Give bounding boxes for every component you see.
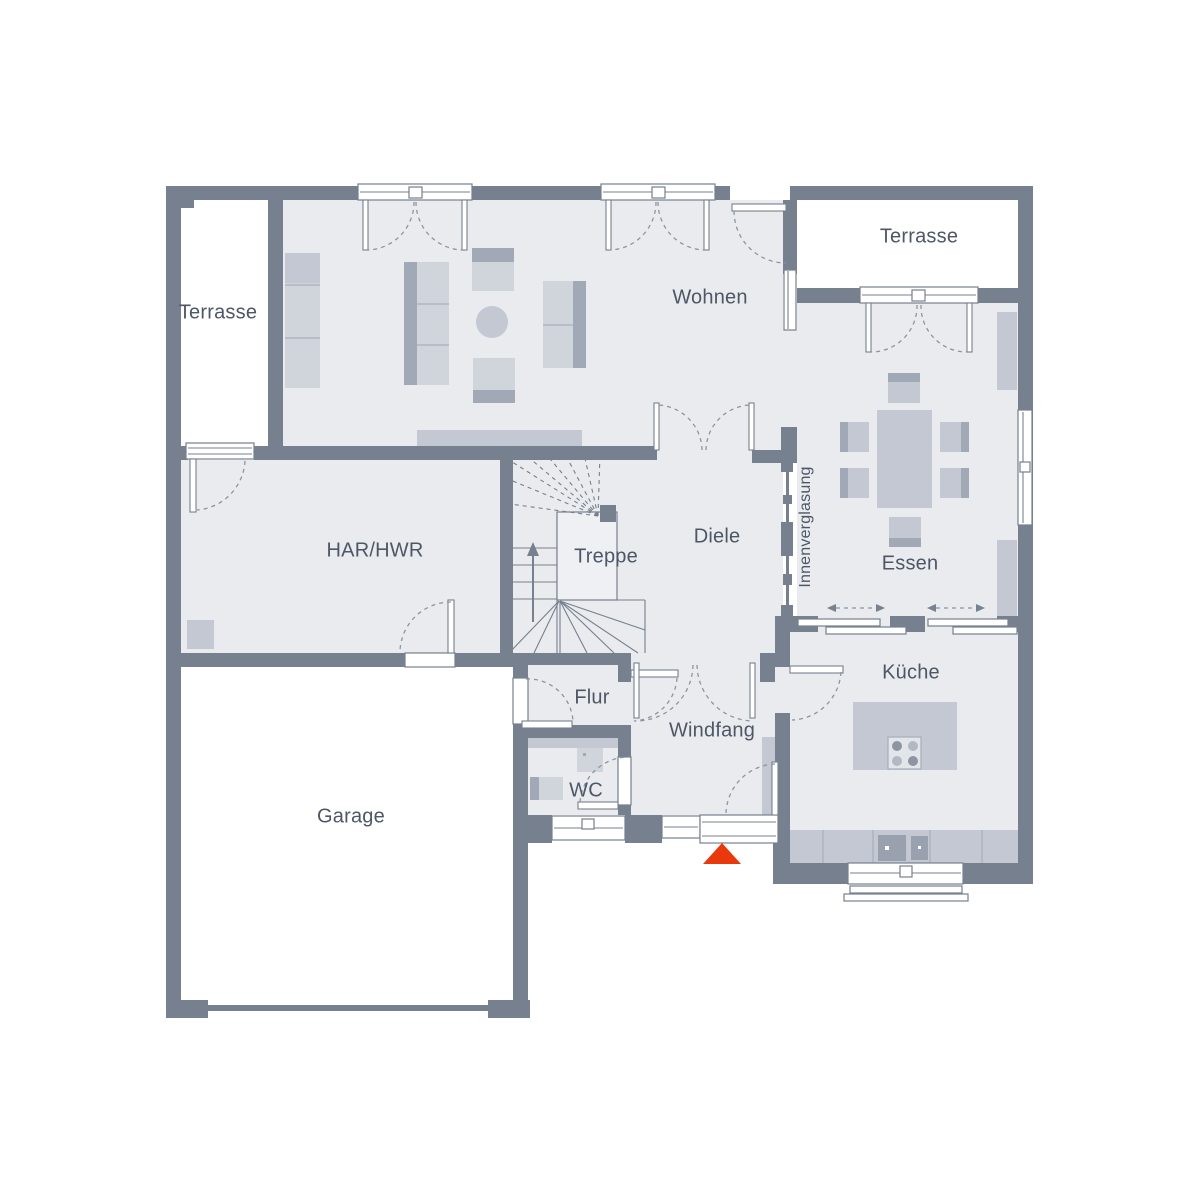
room-label-wohnen: Wohnen bbox=[672, 287, 747, 310]
room-label-innenverglasung: Innenverglasung bbox=[797, 466, 815, 587]
room-label-har-hwr: HAR/HWR bbox=[327, 540, 424, 563]
room-label-diele: Diele bbox=[694, 526, 741, 549]
room-label-garage: Garage bbox=[317, 806, 385, 829]
floor-plan-canvas: Terrasse Terrasse Wohnen HAR/HWR Treppe … bbox=[0, 0, 1200, 1200]
room-label-flur: Flur bbox=[574, 687, 609, 710]
room-label-windfang: Windfang bbox=[669, 720, 755, 743]
room-label-terrasse-left: Terrasse bbox=[179, 302, 257, 325]
room-label-terrasse-right: Terrasse bbox=[880, 226, 958, 249]
floor-plan-drawing bbox=[0, 0, 1200, 1200]
room-label-treppe: Treppe bbox=[574, 546, 638, 569]
room-label-kueche: Küche bbox=[882, 662, 940, 685]
room-label-wc: WC bbox=[569, 780, 603, 803]
room-label-essen: Essen bbox=[882, 553, 939, 576]
